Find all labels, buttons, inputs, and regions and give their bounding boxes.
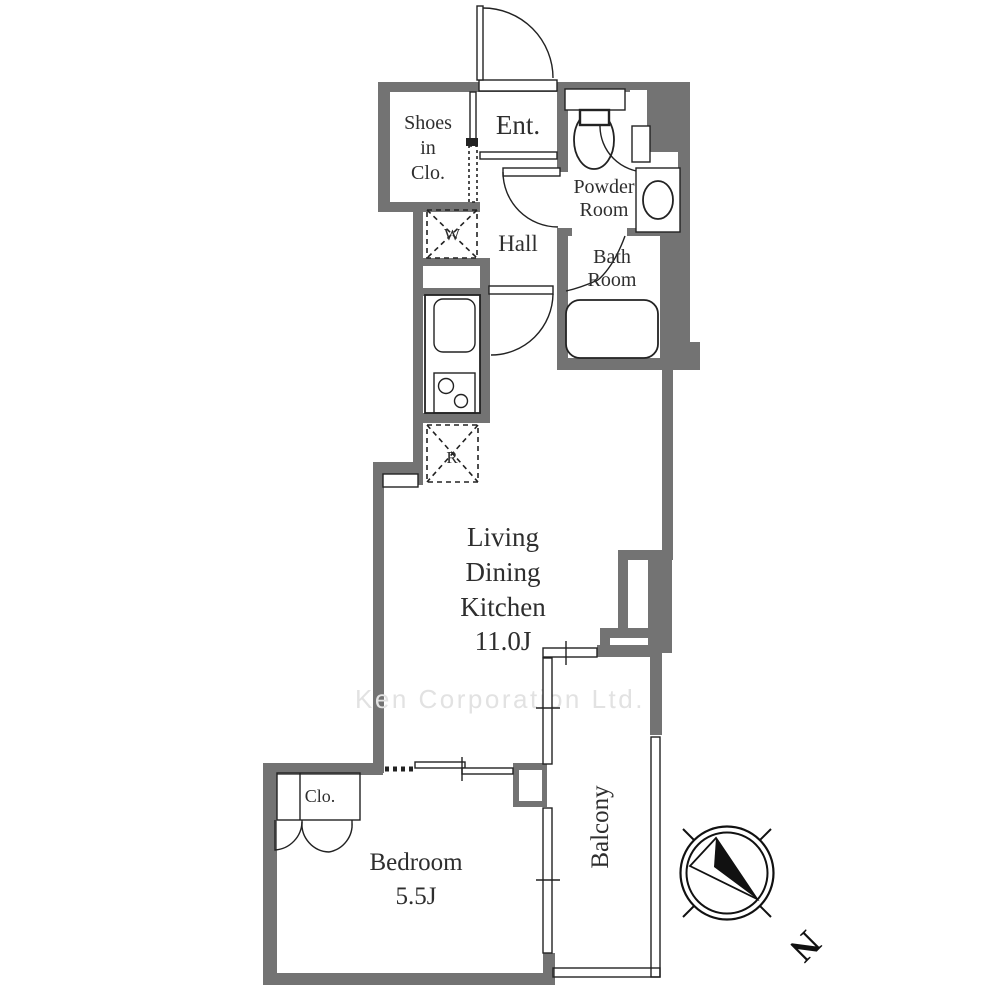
compass-north-label: N <box>782 923 829 970</box>
label-shoes-closet-2: in <box>420 137 436 159</box>
label-ldk-2: Dining <box>465 557 540 587</box>
entrance-step <box>480 152 557 159</box>
window-ldk-balcony <box>543 648 597 657</box>
label-bedroom-size: 5.5J <box>396 883 437 910</box>
entrance-door-icon <box>477 6 557 91</box>
label-shoes-closet-3: Clo. <box>411 162 445 184</box>
shoe-shelf-icon <box>466 92 478 202</box>
label-ldk-3: Kitchen <box>460 592 546 622</box>
label-entrance: Ent. <box>496 110 540 140</box>
window-ldk-side <box>543 658 552 764</box>
counter-box <box>383 474 418 487</box>
label-ldk-1: Living <box>467 522 539 552</box>
label-fridge: R <box>446 448 458 467</box>
label-ldk-size: 11.0J <box>475 626 532 656</box>
wall-notch <box>648 152 678 163</box>
compass-icon: N <box>681 827 829 970</box>
bathtub-icon <box>566 300 658 358</box>
label-shoes-closet-1: Shoes <box>404 112 452 134</box>
label-bath-room-2: Room <box>588 269 637 291</box>
watermark-text: Ken Corporation Ltd. <box>355 684 645 714</box>
label-balcony: Balcony <box>587 785 614 869</box>
label-closet: Clo. <box>305 786 336 806</box>
room-labels: Shoes in Clo. Ent. Powder Room Hall Bath… <box>305 110 637 910</box>
powder-room-door-icon <box>503 168 560 227</box>
floor-plan-image: Ken Corporation Ltd. <box>0 0 1000 1000</box>
label-powder-room-2: Room <box>580 199 629 221</box>
toilet-icon <box>565 89 625 169</box>
label-hall: Hall <box>498 231 538 256</box>
hall-door-icon <box>489 286 553 355</box>
closet-folding-doors-icon <box>275 820 352 852</box>
washbasin-icon <box>636 168 680 232</box>
kitchen-counter-icon <box>425 295 480 413</box>
label-washer: W <box>444 225 461 244</box>
pillar-inset <box>519 770 542 801</box>
label-bath-room-1: Bath <box>593 246 631 268</box>
label-bedroom: Bedroom <box>369 849 463 876</box>
floor-plan-page: Ken Corporation Ltd. <box>0 0 1000 1000</box>
label-powder-room-1: Powder <box>573 176 634 198</box>
sliding-door-icon <box>385 757 513 781</box>
